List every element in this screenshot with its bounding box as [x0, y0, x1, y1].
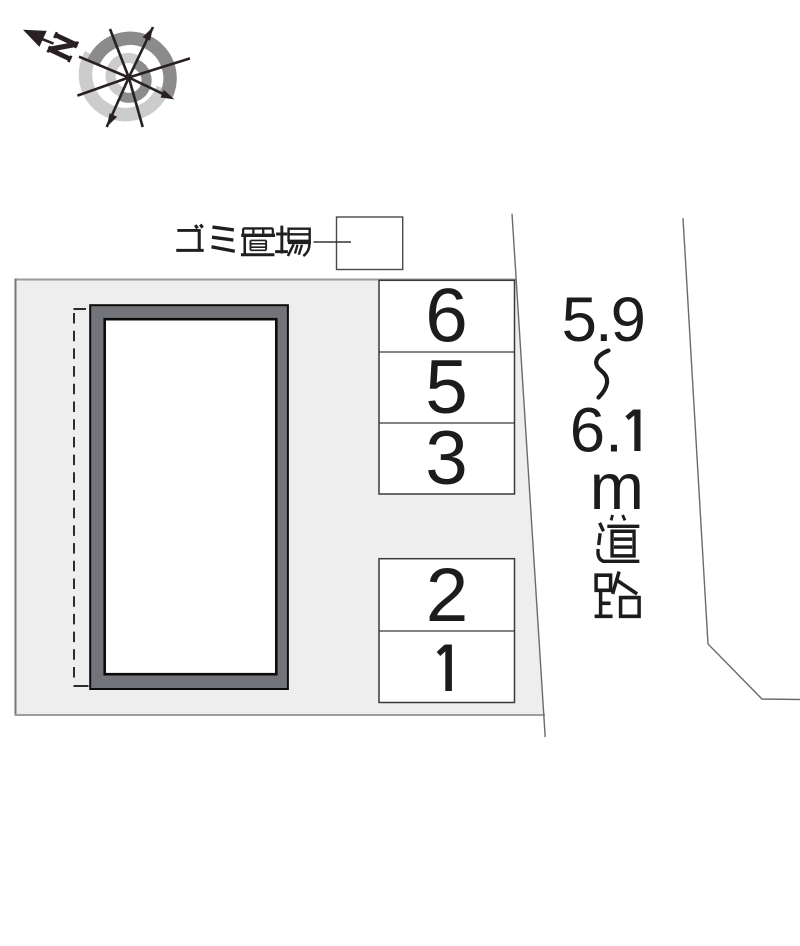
svg-text:3: 3: [425, 416, 468, 501]
svg-text:m: m: [590, 450, 644, 523]
svg-text:2: 2: [426, 553, 469, 638]
svg-text:5.9: 5.9: [562, 285, 644, 355]
